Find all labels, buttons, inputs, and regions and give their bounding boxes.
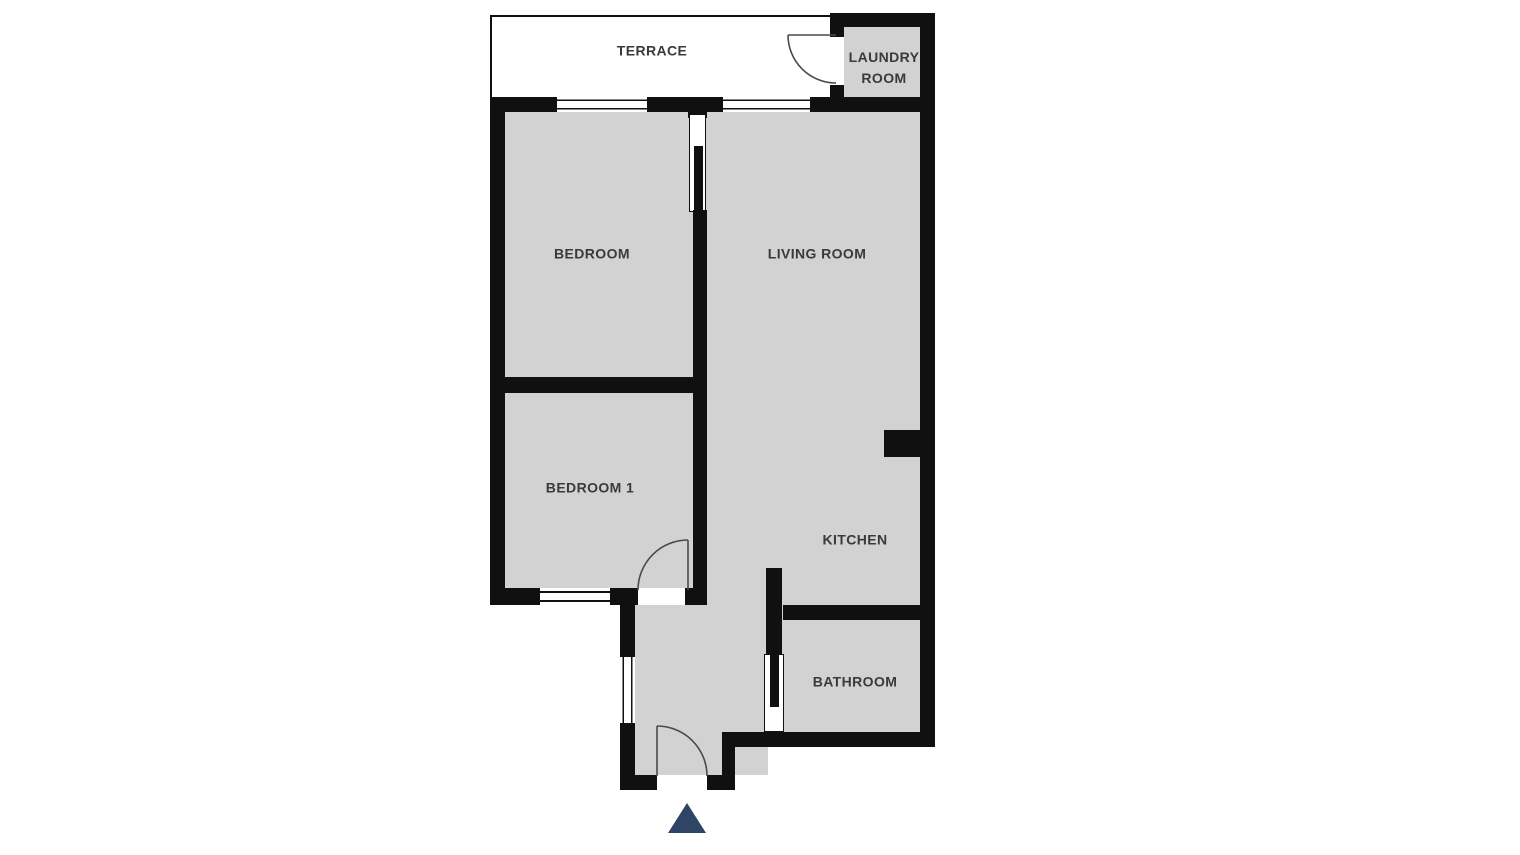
laundry-left-wall-stub	[830, 85, 844, 112]
hall-left-wall	[620, 588, 635, 657]
living-room-top-window	[723, 97, 810, 112]
bedroom1-window	[540, 588, 610, 605]
floorplan-canvas: TERRACE LAUNDRY ROOM BEDROOM LIVING ROOM…	[0, 0, 1520, 855]
bedroom-divider-wall	[490, 377, 695, 393]
laundry-left-wall-stub	[830, 13, 844, 37]
laundry-room-label: LAUNDRY ROOM	[849, 47, 920, 89]
hall-window	[620, 657, 635, 723]
top-wall-segment	[647, 97, 723, 112]
bedroom1-doorway	[638, 588, 685, 605]
entrance-arrow-icon	[668, 803, 706, 833]
bathroom-bottom-wall	[722, 732, 935, 747]
laundry-room-label-line2: ROOM	[849, 68, 920, 89]
entrance-doorway	[657, 775, 707, 790]
bedroom1-bottom-wall	[490, 588, 540, 605]
bedroom-top-window	[557, 97, 647, 112]
terrace-label: TERRACE	[617, 41, 687, 62]
bathroom-label: BATHROOM	[813, 672, 898, 693]
hall-area	[635, 600, 768, 775]
hall-bottom-wall	[620, 775, 657, 790]
right-exterior-wall	[920, 13, 935, 747]
top-wall-segment	[810, 97, 935, 112]
laundry-room-label-line1: LAUNDRY	[849, 47, 920, 68]
interior-wall-main	[693, 210, 707, 605]
bathroom-sliding-door-panel	[770, 645, 779, 707]
bedroom1-label: BEDROOM 1	[546, 478, 634, 499]
kitchen-label: KITCHEN	[822, 530, 887, 551]
laundry-top-wall	[830, 13, 935, 27]
kitchen-wall-stub	[884, 430, 932, 457]
living-room-label: LIVING ROOM	[768, 244, 867, 265]
left-exterior-wall	[490, 97, 505, 605]
bedroom1-bottom-wall	[685, 588, 707, 605]
bedroom-sliding-door-panel	[694, 146, 703, 216]
bathroom-top-wall	[783, 605, 935, 620]
laundry-doorway	[830, 37, 844, 85]
bedroom-label: BEDROOM	[554, 244, 630, 265]
